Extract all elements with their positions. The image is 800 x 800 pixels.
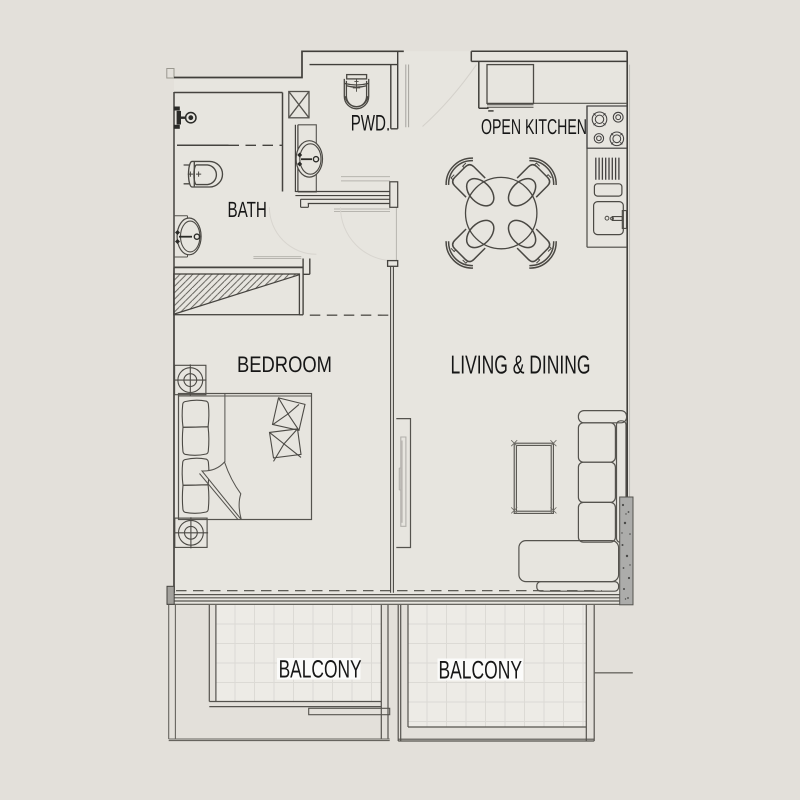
svg-text:LIVING & DINING: LIVING & DINING [451,350,591,380]
svg-text:BALCONY: BALCONY [439,657,523,685]
svg-text:BATH: BATH [228,197,267,222]
svg-text:BALCONY: BALCONY [279,655,362,683]
svg-text:BEDROOM: BEDROOM [237,352,332,377]
svg-text:OPEN KITCHEN: OPEN KITCHEN [481,115,587,139]
svg-text:PWD.: PWD. [351,110,391,135]
